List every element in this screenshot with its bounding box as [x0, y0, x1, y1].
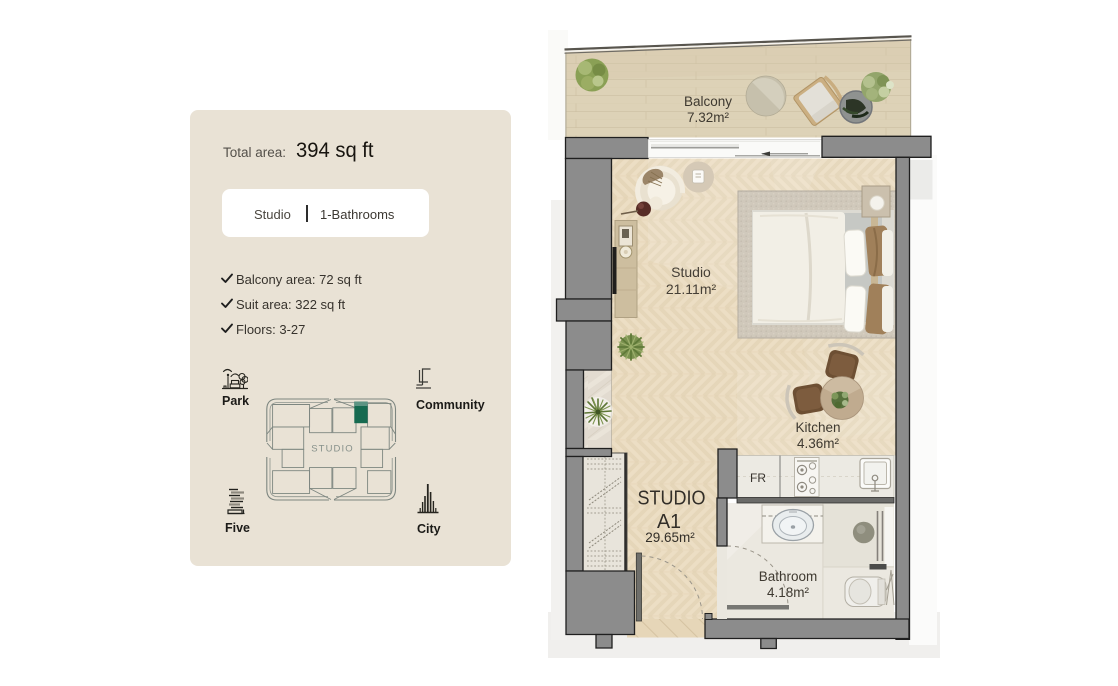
svg-text:4.36m²: 4.36m²: [797, 436, 840, 451]
svg-text:7.32m²: 7.32m²: [687, 110, 730, 125]
svg-text:29.65m²: 29.65m²: [645, 530, 695, 545]
svg-text:Kitchen: Kitchen: [795, 420, 840, 435]
svg-text:Bathroom: Bathroom: [759, 569, 818, 584]
svg-text:Studio: Studio: [671, 264, 711, 280]
svg-text:STUDIO: STUDIO: [311, 444, 354, 455]
svg-text:Balcony: Balcony: [684, 94, 732, 109]
svg-text:FR: FR: [750, 471, 766, 485]
svg-text:4.18m²: 4.18m²: [767, 585, 810, 600]
svg-text:STUDIO: STUDIO: [638, 487, 706, 510]
svg-text:21.11m²: 21.11m²: [666, 281, 717, 297]
